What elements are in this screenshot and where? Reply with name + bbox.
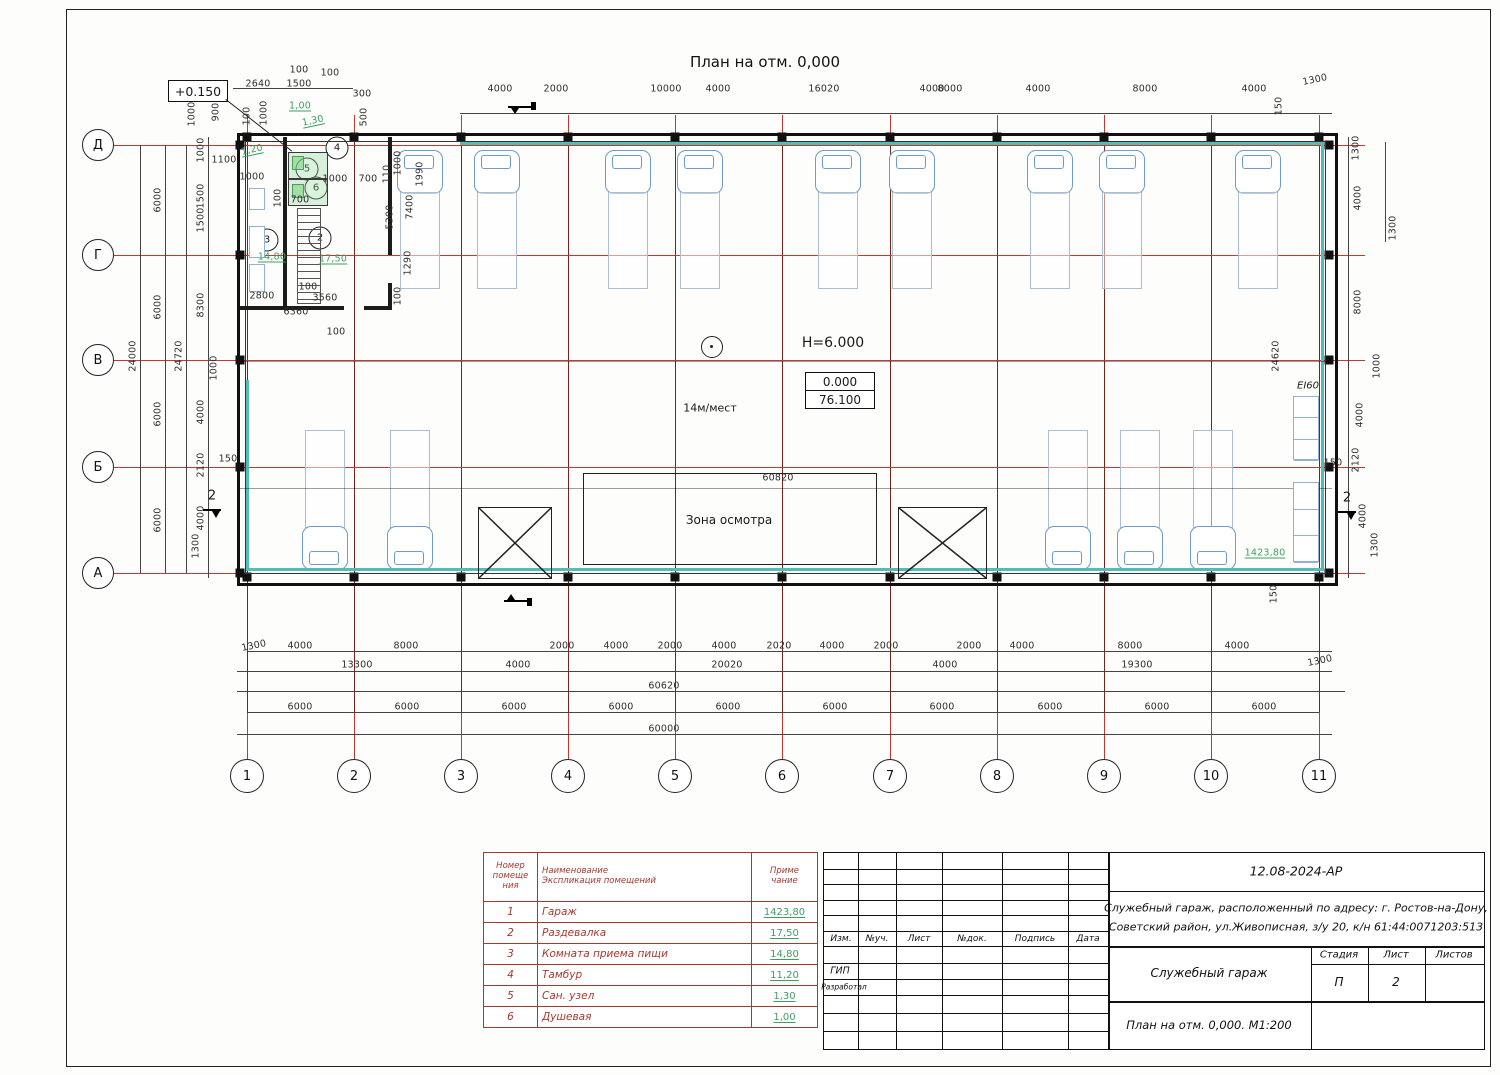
dimension-label: 1000 xyxy=(1372,354,1383,379)
titleblock-line xyxy=(824,995,1108,996)
legend-cell: Душевая xyxy=(538,1007,752,1028)
dimension-label: 6000 xyxy=(609,702,634,713)
section2-right-label: 2 xyxy=(1343,491,1351,506)
titleblock-text: Разработал xyxy=(821,983,866,992)
dimension-label: 700 xyxy=(291,195,310,206)
legend-row: 4Тамбур11,20 xyxy=(484,965,818,986)
kitchen-fixture xyxy=(249,264,265,292)
legend-cell: 1,00 xyxy=(752,1007,818,1028)
fire-rating-label: EI60 xyxy=(1297,381,1319,392)
dimension-label: 1000 xyxy=(196,138,207,163)
dimension-label: 2120 xyxy=(196,453,207,478)
titleblock-line xyxy=(824,1031,1108,1032)
titleblock-line xyxy=(942,853,943,1049)
level-bottom: 76.100 xyxy=(806,391,874,408)
legend-row: 6Душевая1,00 xyxy=(484,1007,818,1028)
dimension-label: 7400 xyxy=(405,195,416,220)
titleblock-text: №док. xyxy=(957,934,986,944)
axis-bubble-col-8: 8 xyxy=(980,759,1014,793)
legend-cell: 1423,80 xyxy=(752,902,818,923)
dimension-label: 1,00 xyxy=(289,101,311,112)
titleblock-line xyxy=(1108,891,1484,892)
dimension-label: 700 xyxy=(359,174,378,185)
legend-cell: Комната приема пищи xyxy=(538,944,752,965)
titleblock-line xyxy=(1108,853,1110,1049)
legend-row: 5Сан. узел1,30 xyxy=(484,986,818,1007)
legend-cell: Раздевалка xyxy=(538,923,752,944)
dimension-label: 2000 xyxy=(874,641,899,652)
dimension-label: 4000 xyxy=(933,660,958,671)
dimension-chain-line xyxy=(140,145,141,573)
gate-cross-left xyxy=(478,507,552,579)
project-name: Советский район, ул.Живописная, з/у 20, … xyxy=(1109,921,1483,934)
wall-lining-right xyxy=(1321,142,1324,568)
dimension-label: 6000 xyxy=(502,702,527,713)
dimension-chain-line xyxy=(1385,142,1386,242)
dimension-chain-line xyxy=(237,671,1332,672)
sheet-name: План на отм. 0,000. М1:200 xyxy=(1126,1018,1291,1032)
section2-left-label: 2 xyxy=(208,489,216,504)
dimension-chain-line xyxy=(460,113,1332,114)
section-flag-top xyxy=(508,100,538,114)
titleblock-line xyxy=(1068,853,1069,1049)
dimension-label: 4000 xyxy=(196,400,207,425)
axis-bubble-col-9: 9 xyxy=(1087,759,1121,793)
dimension-label: 1300 xyxy=(191,534,202,559)
dimension-label: 4000 xyxy=(1026,84,1051,95)
dimension-label: 2000 xyxy=(544,84,569,95)
titleblock-line xyxy=(896,853,897,1049)
legend-header: Наименование Экспликация помещений xyxy=(538,853,752,902)
titleblock-text: Стадия xyxy=(1320,950,1358,961)
dimension-label: 24620 xyxy=(1271,340,1282,371)
dimension-label: 1500 xyxy=(196,184,207,209)
titleblock-line xyxy=(824,963,1108,964)
dimension-label: 1000 xyxy=(259,101,270,126)
legend-cell: Тамбур xyxy=(538,965,752,986)
dimension-label: 2000 xyxy=(957,641,982,652)
axis-bubble-col-7: 7 xyxy=(873,759,907,793)
dimension-label: 8000 xyxy=(1133,84,1158,95)
dimension-label: 6000 xyxy=(930,702,955,713)
wall-lining-top xyxy=(460,142,1324,145)
dimension-label: 2800 xyxy=(250,291,275,302)
titleblock-line xyxy=(824,931,1108,932)
dimension-label: 60620 xyxy=(648,681,679,692)
titleblock-text: Дата xyxy=(1076,934,1099,944)
dimension-label: 6000 xyxy=(153,508,164,533)
axis-bubble-row-Г: Г xyxy=(82,239,114,271)
legend-header: Номер помеще ния xyxy=(484,853,538,902)
titleblock-line xyxy=(858,853,859,1049)
dimension-label: 100 xyxy=(290,65,309,76)
dimension-label: 4000 xyxy=(506,660,531,671)
dimension-label: 1300 xyxy=(1370,533,1381,558)
dimension-label: 4000 xyxy=(820,641,845,652)
title-block: Изм.№уч.Лист№док.ПодписьДатаГИПРазработа… xyxy=(823,852,1485,1050)
legend-row: 3Комната приема пищи14,80 xyxy=(484,944,818,965)
dimension-label: 10000 xyxy=(650,84,681,95)
dimension-label: 2020 xyxy=(767,641,792,652)
dimension-label: 6000 xyxy=(1038,702,1063,713)
dimension-label: 900 xyxy=(211,103,222,122)
dimension-label: 24000 xyxy=(128,340,139,371)
dimension-label: 2000 xyxy=(658,641,683,652)
titleblock-line xyxy=(1311,946,1312,1049)
legend-cell: 11,20 xyxy=(752,965,818,986)
dimension-label: 4000 xyxy=(1010,641,1035,652)
legend-cell: Сан. узел xyxy=(538,986,752,1007)
column-symbol xyxy=(701,336,723,358)
legend-cell: 17,50 xyxy=(752,923,818,944)
dimension-chain-line xyxy=(165,145,166,573)
dimension-label: 16020 xyxy=(808,84,839,95)
dimension-label: 20020 xyxy=(711,660,742,671)
dimension-label: 1500 xyxy=(287,79,312,90)
dimension-label: 19300 xyxy=(1121,660,1152,671)
stage-value: П xyxy=(1334,975,1343,989)
titleblock-text: Изм. xyxy=(830,934,851,944)
dimension-label: 6000 xyxy=(395,702,420,713)
dimension-label: 4000 xyxy=(488,84,513,95)
dimension-label: 4000 xyxy=(288,641,313,652)
dimension-label: 4000 xyxy=(706,84,731,95)
legend-header: Приме чание xyxy=(752,853,818,902)
project-name: Служебный гараж, расположенный по адресу… xyxy=(1104,902,1488,915)
dimension-label: 8000 xyxy=(1118,641,1143,652)
axis-bubble-row-Д: Д xyxy=(82,129,114,161)
dimension-label: 1300 xyxy=(1388,216,1399,241)
dimension-label: 6000 xyxy=(153,402,164,427)
dimension-label: 1500 xyxy=(196,208,207,233)
titleblock-text: Листов xyxy=(1435,950,1472,961)
height-mark: H=6.000 xyxy=(802,335,864,351)
partition-wall xyxy=(283,137,287,310)
dimension-label: 4000 xyxy=(1358,504,1369,529)
legend-cell: 1 xyxy=(484,902,538,923)
titleblock-text: Лист xyxy=(1383,950,1408,961)
titleblock-text: №уч. xyxy=(866,934,889,944)
dimension-label: 17,50 xyxy=(319,254,347,265)
dimension-label: 1000 xyxy=(209,356,220,381)
dimension-label: 3560 xyxy=(313,293,338,304)
dimension-label: 4000 xyxy=(196,506,207,531)
titleblock-text: Подпись xyxy=(1015,934,1055,944)
dimension-label: 1000 xyxy=(187,102,198,127)
dimension-label: 150 xyxy=(1324,458,1343,469)
plan-title: План на отм. 0,000 xyxy=(690,53,840,71)
dimension-label: 300 xyxy=(353,89,372,100)
titleblock-line xyxy=(824,884,1108,885)
dimension-label: 4000 xyxy=(712,641,737,652)
legend-row: 1Гараж1423,80 xyxy=(484,902,818,923)
dimension-label: 4000 xyxy=(1355,403,1366,428)
dimension-label: 1300 xyxy=(1351,136,1362,161)
dimension-label: 4000 xyxy=(604,641,629,652)
dimension-label: 6000 xyxy=(823,702,848,713)
dimension-label: 6000 xyxy=(288,702,313,713)
axis-bubble-col-10: 10 xyxy=(1194,759,1228,793)
legend-cell: 3 xyxy=(484,944,538,965)
kitchen-fixture xyxy=(249,188,265,210)
partition-wall xyxy=(364,306,392,310)
dimension-label: 4000 xyxy=(1353,186,1364,211)
drawing-sheet: План на отм. 0,000 23456 Зона осмотра +0… xyxy=(0,0,1500,1075)
dimension-label: 100 xyxy=(242,107,253,126)
dimension-label: 2640 xyxy=(246,79,271,90)
dimension-label: 100 xyxy=(299,282,318,293)
axis-bubble-col-6: 6 xyxy=(765,759,799,793)
axis-bubble-col-11: 11 xyxy=(1302,759,1336,793)
dimension-chain-line xyxy=(237,691,1345,692)
dimension-label: 100 xyxy=(393,287,404,306)
dimension-label: 150 xyxy=(1274,97,1285,116)
dimension-label: 2000 xyxy=(550,641,575,652)
axis-bubble-col-3: 3 xyxy=(444,759,478,793)
bench-furniture xyxy=(1293,396,1319,460)
partition-wall xyxy=(388,137,392,255)
legend-row: 2Раздевалка17,50 xyxy=(484,923,818,944)
legend-cell: 5 xyxy=(484,986,538,1007)
bench-furniture xyxy=(1293,482,1319,562)
dimension-label: 8000 xyxy=(394,641,419,652)
dimension-label: 150 xyxy=(219,454,238,465)
titleblock-line xyxy=(1108,946,1484,948)
dimension-label: 100 xyxy=(273,189,284,208)
section2-left-arrow xyxy=(212,511,220,518)
titleblock-line xyxy=(824,869,1108,870)
axis-bubble-row-А: А xyxy=(82,557,114,589)
inspection-zone-label: Зона осмотра xyxy=(686,513,772,527)
dimension-label: 6000 xyxy=(153,295,164,320)
dimension-label: 1000 xyxy=(240,172,265,183)
legend-cell: 1,30 xyxy=(752,986,818,1007)
dimension-label: 1990 xyxy=(415,162,426,187)
titleblock-line xyxy=(824,915,1108,916)
object-name: Служебный гараж xyxy=(1150,966,1267,980)
dimension-label: 1000 xyxy=(323,174,348,185)
legend-cell: Гараж xyxy=(538,902,752,923)
toilet-fixture xyxy=(292,156,304,170)
titleblock-line xyxy=(824,900,1108,901)
titleblock-text: ГИП xyxy=(830,966,850,977)
legend-cell: 4 xyxy=(484,965,538,986)
level-box: 0.000 76.100 xyxy=(805,372,875,409)
titleblock-text: Лист xyxy=(908,934,931,944)
titleblock-line xyxy=(1002,853,1003,1049)
axis-bubble-row-Б: Б xyxy=(82,451,114,483)
dimension-label: 100 xyxy=(327,327,346,338)
dimension-label: 5300 xyxy=(385,205,396,230)
dimension-label: 6000 xyxy=(1145,702,1170,713)
dimension-chain-line xyxy=(237,734,1332,735)
dimension-label: 60000 xyxy=(648,724,679,735)
titleblock-line xyxy=(824,979,1108,980)
legend-cell: 2 xyxy=(484,923,538,944)
titleblock-line xyxy=(1108,1001,1484,1003)
dimension-label: 8300 xyxy=(196,293,207,318)
dimension-label: 6360 xyxy=(284,307,309,318)
dimension-label: 150 xyxy=(1269,585,1280,604)
dimension-label: 6000 xyxy=(716,702,741,713)
parking-places-note: 14м/мест xyxy=(683,402,737,415)
section2-right-arrow xyxy=(1347,513,1355,520)
dimension-label: 1290 xyxy=(403,251,414,276)
dimension-label: 500 xyxy=(359,108,370,127)
dimension-label: 13300 xyxy=(341,660,372,671)
titleblock-line xyxy=(824,946,1108,947)
dimension-label: 1423,80 xyxy=(1245,548,1286,559)
dimension-label: 4000 xyxy=(1225,641,1250,652)
dimension-label: 14,80 xyxy=(258,252,286,263)
dimension-chain-line xyxy=(186,145,187,573)
dimension-label: 8000 xyxy=(938,84,963,95)
dimension-label: 2120 xyxy=(1351,448,1362,473)
dimension-label: 60820 xyxy=(762,473,793,484)
axis-bubble-col-1: 1 xyxy=(230,759,264,793)
dimension-label: 24720 xyxy=(174,340,185,371)
dimension-label: 100 xyxy=(321,68,340,79)
axis-bubble-col-5: 5 xyxy=(658,759,692,793)
dimension-label: 4000 xyxy=(1242,84,1267,95)
axis-bubble-row-В: В xyxy=(82,344,114,376)
wall-lining-bottom xyxy=(246,568,1324,571)
titleblock-line xyxy=(1425,946,1426,1001)
dimension-label: 6000 xyxy=(153,188,164,213)
level-top: 0.000 xyxy=(806,373,874,391)
room-legend-table: Номер помеще нияНаименование Экспликация… xyxy=(483,852,818,1028)
dimension-label: 1100 xyxy=(212,155,237,166)
axis-bubble-col-4: 4 xyxy=(551,759,585,793)
legend-cell: 6 xyxy=(484,1007,538,1028)
dimension-label: 8000 xyxy=(1353,290,1364,315)
dimension-label: 6000 xyxy=(1252,702,1277,713)
gate-cross-right xyxy=(898,507,987,579)
doc-code: 12.08-2024-АР xyxy=(1250,864,1343,879)
legend-cell: 14,80 xyxy=(752,944,818,965)
titleblock-line xyxy=(824,1013,1108,1014)
elevation-mark: +0.150 xyxy=(168,80,228,102)
wall-lining-left xyxy=(246,380,249,568)
titleblock-line xyxy=(1311,964,1484,965)
dimension-label: 1000 xyxy=(393,151,404,176)
axis-bubble-col-2: 2 xyxy=(337,759,371,793)
dimension-label: 110 xyxy=(382,165,393,184)
beam-line-v-axis xyxy=(240,361,1332,362)
titleblock-line xyxy=(1368,946,1369,1001)
section-flag-bottom xyxy=(504,594,534,608)
sheet-number: 2 xyxy=(1392,975,1400,989)
